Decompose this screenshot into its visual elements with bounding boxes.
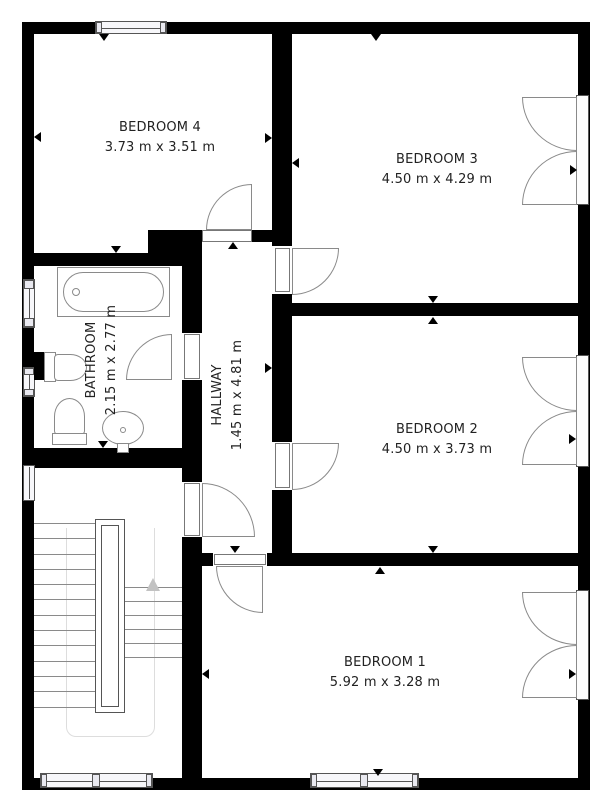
stairwell-bottom-window bbox=[40, 773, 153, 788]
threshold-bedroom3-door bbox=[275, 248, 290, 292]
wall-bed2-bed1 bbox=[267, 553, 578, 566]
bathroom-door-swing-icon bbox=[126, 334, 172, 380]
bedroom1-french-door-upper-icon bbox=[522, 592, 577, 645]
stairs-railing-inner bbox=[101, 525, 119, 707]
bedroom1-label: BEDROOM 1 5.92 m x 3.28 m bbox=[285, 653, 485, 693]
bedroom3-french-door-upper-icon bbox=[522, 97, 577, 151]
bedroom4-dims: 3.73 m x 3.51 m bbox=[60, 138, 260, 158]
hallway-label: HALLWAY 1.45 m x 4.81 m bbox=[208, 315, 248, 475]
wall-marker-icon bbox=[570, 165, 577, 175]
bathroom-window-upper bbox=[23, 279, 35, 328]
bathroom-name: BATHROOM bbox=[82, 280, 102, 440]
bedroom1-bottom-window bbox=[310, 773, 419, 788]
wall-marker-icon bbox=[98, 441, 108, 448]
bedroom3-french-door-sill bbox=[576, 95, 589, 205]
wall-marker-icon bbox=[34, 132, 41, 142]
wall-marker-icon bbox=[202, 669, 209, 679]
wall-marker-icon bbox=[375, 567, 385, 574]
bedroom1-name: BEDROOM 1 bbox=[285, 653, 485, 673]
wall-marker-icon bbox=[230, 546, 240, 553]
floor-plan: BEDROOM 4 3.73 m x 3.51 m BEDROOM 3 4.50… bbox=[0, 0, 603, 800]
threshold-bedroom4-door bbox=[202, 230, 252, 242]
bathtub-drain-icon bbox=[72, 288, 80, 296]
wall-marker-icon bbox=[111, 246, 121, 253]
threshold-bathroom-door bbox=[184, 334, 200, 379]
wall-marker-icon bbox=[265, 363, 272, 373]
bedroom4-label: BEDROOM 4 3.73 m x 3.51 m bbox=[60, 118, 260, 158]
wall-bed3-bed2 bbox=[292, 303, 578, 316]
wall-hallway-left-a bbox=[182, 230, 202, 333]
wall-bed4-door-right bbox=[252, 230, 272, 242]
wall-marker-icon bbox=[228, 242, 238, 249]
wall-marker-icon bbox=[34, 369, 41, 379]
bedroom3-door-swing-icon bbox=[292, 248, 339, 295]
wall-marker-icon bbox=[569, 669, 576, 679]
bathroom-dims: 2.15 m x 2.77 m bbox=[102, 280, 122, 440]
wall-bed2-bed1-left bbox=[202, 553, 213, 566]
hallway-dims: 1.45 m x 4.81 m bbox=[228, 315, 248, 475]
wall-marker-icon bbox=[98, 259, 108, 266]
wall-marker-icon bbox=[292, 158, 299, 168]
wall-jog-block bbox=[148, 230, 182, 266]
bedroom2-dims: 4.50 m x 3.73 m bbox=[337, 440, 537, 460]
threshold-bedroom1-door bbox=[214, 554, 266, 565]
bedroom1-dims: 5.92 m x 3.28 m bbox=[285, 673, 485, 693]
bedroom3-name: BEDROOM 3 bbox=[337, 150, 537, 170]
wall-bed4-bed3 bbox=[272, 34, 292, 246]
landing-door-swing-icon bbox=[202, 483, 255, 537]
bedroom1-door-swing-icon bbox=[216, 566, 263, 613]
wall-marker-icon bbox=[99, 34, 109, 41]
bedroom3-dims: 4.50 m x 4.29 m bbox=[337, 170, 537, 190]
bedroom2-door-swing-icon bbox=[292, 443, 339, 490]
stairs-direction-arrow-icon bbox=[146, 578, 160, 591]
bedroom2-french-door-upper-icon bbox=[522, 357, 577, 411]
threshold-landing-door bbox=[184, 483, 200, 536]
wall-bathroom-top bbox=[34, 253, 160, 266]
wall-marker-icon bbox=[373, 769, 383, 776]
wall-marker-icon bbox=[371, 34, 381, 41]
wall-marker-icon bbox=[265, 133, 272, 143]
stairwell-side-window bbox=[23, 465, 35, 501]
wall-marker-icon bbox=[569, 434, 576, 444]
bedroom1-french-door-sill bbox=[576, 590, 589, 700]
wall-marker-icon bbox=[428, 296, 438, 303]
bedroom4-door-swing-icon bbox=[206, 184, 252, 230]
bedroom4-name: BEDROOM 4 bbox=[60, 118, 260, 138]
bidet-bowl-icon bbox=[54, 398, 85, 435]
bedroom2-name: BEDROOM 2 bbox=[337, 420, 537, 440]
wall-marker-icon bbox=[428, 546, 438, 553]
wall-hallway-right-mid bbox=[272, 294, 292, 442]
bedroom2-label: BEDROOM 2 4.50 m x 3.73 m bbox=[337, 420, 537, 460]
hallway-name: HALLWAY bbox=[208, 315, 228, 475]
bathroom-label: BATHROOM 2.15 m x 2.77 m bbox=[82, 280, 122, 440]
wall-outer-left bbox=[22, 22, 34, 790]
bedroom4-top-window bbox=[95, 21, 167, 34]
sink-tap-icon bbox=[117, 443, 129, 453]
wall-stairwell-right bbox=[182, 537, 202, 778]
bedroom2-french-door-sill bbox=[576, 355, 589, 467]
bedroom3-label: BEDROOM 3 4.50 m x 4.29 m bbox=[337, 150, 537, 190]
wall-marker-icon bbox=[428, 317, 438, 324]
threshold-bedroom2-door bbox=[275, 443, 290, 488]
